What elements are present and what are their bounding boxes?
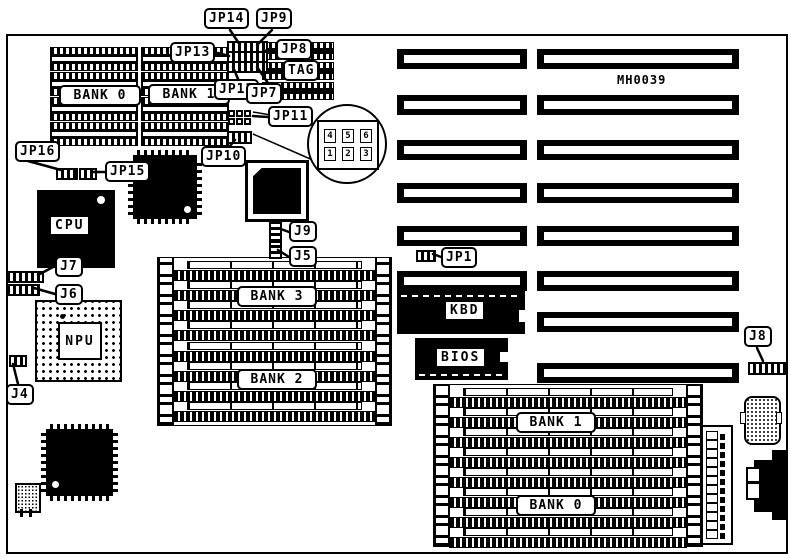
jp10-jumper [227, 131, 252, 144]
io-qfp-lower [41, 424, 118, 501]
isa-slot [537, 140, 739, 160]
simm-socket [173, 342, 376, 362]
jp15-jumper [79, 168, 97, 180]
jp7-jumper [251, 61, 268, 73]
bank0-simm-label: BANK 0 [516, 495, 596, 516]
power-connector-pins [720, 431, 725, 539]
tag-label: TAG [283, 60, 319, 81]
kbd-chip-notch-line [401, 295, 521, 297]
jp11-label: JP11 [268, 106, 313, 127]
magnifier-pin-4: 4 [324, 129, 336, 143]
jp10-label: JP10 [201, 146, 246, 167]
isa-slot [397, 49, 527, 69]
bank1-simm-label: BANK 1 [516, 412, 596, 433]
cpu-label: CPU [51, 217, 88, 234]
bios-chip-notch-line [419, 374, 504, 376]
isa-slot [537, 226, 739, 246]
isa-slot [537, 271, 739, 291]
dip-chip [50, 122, 138, 146]
isa-slot [397, 226, 527, 246]
jp1-jumper [416, 250, 436, 262]
jp13-label: JP13 [170, 42, 215, 63]
j5-label: J5 [289, 246, 317, 267]
jp11-pinout: 4 5 6 1 2 3 [317, 120, 379, 170]
jp16-jumper [56, 168, 78, 180]
j7-label: J7 [55, 256, 83, 277]
chipset-qfp-upper-dot [184, 206, 191, 213]
keyboard-din-connector-step [772, 512, 786, 520]
j6-label: J6 [55, 284, 83, 305]
npu-inner-window: NPU [58, 322, 102, 360]
magnifier-pin-2: 2 [342, 147, 354, 161]
jp16-label: JP16 [15, 141, 60, 162]
din-plug-upper [746, 467, 761, 483]
magnifier-pin-6: 6 [360, 129, 372, 143]
isa-slot [397, 95, 527, 115]
isa-slot [397, 183, 527, 203]
kbd-chip-notch [519, 310, 525, 322]
simm-block-bank1-bank0 [433, 384, 703, 547]
isa-slot [537, 49, 739, 69]
jp14-label: JP14 [204, 8, 249, 29]
bank3-simm-label: BANK 3 [237, 286, 317, 307]
battery-tab [740, 412, 746, 424]
magnifier-pin-3: 3 [360, 147, 372, 161]
isa-slot [537, 312, 739, 332]
jp15-label: JP15 [105, 161, 150, 182]
jp8-label: JP8 [276, 39, 312, 60]
magnifier-pin-5: 5 [342, 129, 354, 143]
j9-label: J9 [289, 221, 317, 242]
j9-jumper [269, 221, 282, 241]
motherboard-diagram: BANK 0 BANK 1 TAG JP14 JP9 JP13 JP8 JP12… [0, 0, 791, 559]
simm-socket [449, 468, 687, 488]
simm-socket [173, 402, 376, 422]
simm-rail [375, 258, 391, 425]
keyboard-din-connector-step [772, 450, 786, 462]
bank2-simm-label: BANK 2 [237, 369, 317, 390]
bios-label: BIOS [437, 349, 484, 366]
isa-slot [537, 95, 739, 115]
simm-socket [173, 261, 376, 281]
isa-slot [537, 363, 739, 383]
crystal-oscillator [15, 483, 41, 513]
simm-socket [449, 448, 687, 468]
j7-jumper [8, 271, 44, 283]
crystal-leg [20, 509, 23, 517]
simm-block-bank3-bank2 [157, 257, 392, 426]
dip-chip [141, 122, 229, 146]
npu-socket: NPU [35, 300, 122, 382]
board-id-text: MH0039 [617, 73, 666, 87]
simm-socket [173, 321, 376, 341]
jp12-jumper [227, 61, 253, 73]
bank0-dip-label: BANK 0 [59, 85, 141, 106]
j8-jumper [748, 362, 786, 375]
jp11-jumper [228, 110, 251, 125]
isa-slot [397, 271, 527, 291]
simm-rail [686, 385, 702, 546]
jp1-label: JP1 [441, 247, 477, 268]
dip-chip [50, 47, 138, 71]
isa-slot [537, 183, 739, 203]
jp11-magnified-view: 4 5 6 1 2 3 [307, 104, 387, 184]
magnifier-pin-1: 1 [324, 147, 336, 161]
isa-slot [397, 140, 527, 160]
io-qfp-lower-dot [52, 481, 59, 488]
jp9-label: JP9 [256, 8, 292, 29]
jp7-label: JP7 [246, 83, 282, 104]
din-plug-lower [746, 482, 761, 500]
power-connector [701, 425, 733, 545]
j4-jumper [9, 355, 27, 367]
j6-jumper [8, 284, 40, 296]
cpu-pin1-dot [97, 196, 105, 204]
power-connector-pins [706, 431, 718, 539]
simm-rail [434, 385, 450, 546]
bios-chip-notch [500, 352, 508, 362]
simm-socket [449, 388, 687, 408]
npu-pin1-dot [60, 314, 65, 319]
j4-label: J4 [6, 384, 34, 405]
j8-label: J8 [744, 326, 772, 347]
kbd-label: KBD [446, 302, 483, 319]
crystal-leg [29, 509, 32, 517]
simm-socket [449, 528, 687, 548]
battery-tab [776, 412, 782, 424]
npu-label: NPU [63, 333, 96, 350]
j5-jumper [269, 241, 282, 259]
plcc-socket [245, 160, 309, 222]
simm-rail [158, 258, 174, 425]
